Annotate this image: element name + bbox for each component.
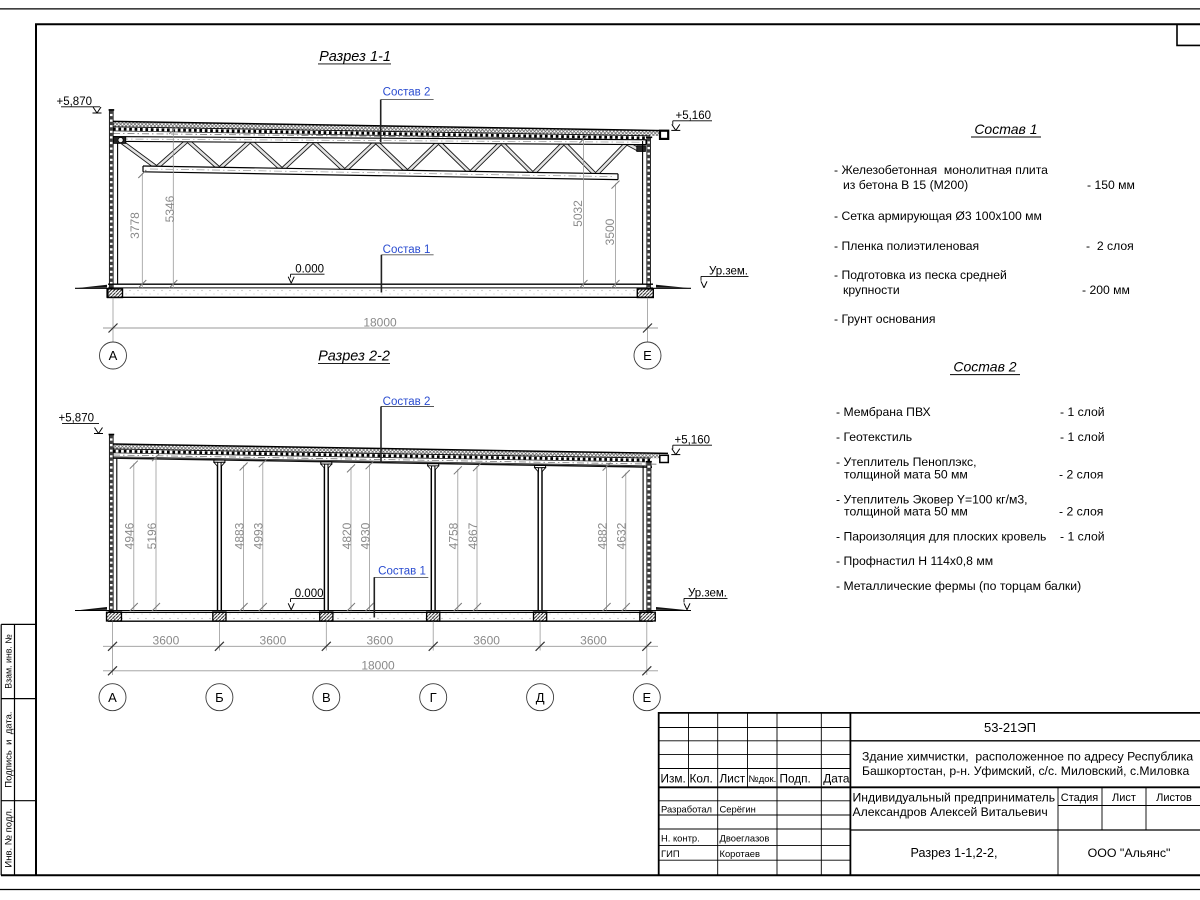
svg-text:3600: 3600 (260, 634, 287, 648)
svg-text:3500: 3500 (603, 218, 617, 245)
svg-text:5032: 5032 (571, 200, 585, 227)
svg-text:Инв. № подл.: Инв. № подл. (4, 808, 15, 867)
svg-text:Разрез 1-1,2-2,: Разрез 1-1,2-2, (910, 846, 997, 860)
svg-text:- 2 слоя: - 2 слоя (1086, 239, 1134, 253)
svg-text:Взам. инв. №: Взам. инв. № (4, 634, 14, 689)
svg-text:Башкортостан, р-н. Уфимский, с: Башкортостан, р-н. Уфимский, с/с. Миловс… (862, 764, 1189, 778)
svg-text:4930: 4930 (358, 522, 372, 549)
svg-text:В: В (322, 690, 331, 705)
svg-text:Разработал: Разработал (661, 804, 712, 815)
svg-text:крупности: крупности (843, 283, 900, 297)
svg-text:4758: 4758 (447, 522, 461, 549)
svg-text:толщиной мата 50 мм: толщиной мата 50 мм (844, 468, 968, 482)
svg-text:+5,160: +5,160 (676, 110, 712, 122)
svg-text:0.000: 0.000 (295, 588, 324, 600)
svg-text:+5,870: +5,870 (59, 413, 95, 425)
svg-text:4883: 4883 (232, 522, 246, 549)
svg-text:53-21ЭП: 53-21ЭП (984, 720, 1036, 735)
svg-text:Разрез 2-2: Разрез 2-2 (318, 348, 390, 364)
svg-text:0.000: 0.000 (295, 263, 324, 275)
svg-text:Дата: Дата (823, 772, 850, 786)
svg-text:Коротаев: Коротаев (720, 848, 761, 859)
svg-text:4820: 4820 (340, 522, 354, 549)
svg-text:- 2 слоя: - 2 слоя (1059, 468, 1103, 482)
svg-text:Серёгин: Серёгин (720, 804, 756, 815)
svg-text:- Металлические фермы (по торц: - Металлические фермы (по торцам балки) (836, 579, 1081, 593)
svg-text:4993: 4993 (252, 522, 266, 549)
svg-text:Н. контр.: Н. контр. (661, 833, 700, 844)
svg-text:Подп.: Подп. (780, 772, 811, 786)
svg-text:- Железобетонная монолитная п: - Железобетонная монолитная плита (834, 163, 1048, 177)
svg-text:Б: Б (215, 690, 224, 705)
svg-text:Александров Алексей Витальевич: Александров Алексей Витальевич (853, 805, 1048, 819)
svg-text:- Пленка полиэтиленовая: - Пленка полиэтиленовая (834, 239, 979, 253)
svg-text:4632: 4632 (615, 522, 629, 549)
svg-text:Индивидуальный предприниматель: Индивидуальный предприниматель (853, 791, 1056, 805)
svg-text:5346: 5346 (163, 195, 177, 222)
svg-text:3778: 3778 (128, 212, 142, 239)
svg-text:Стадия: Стадия (1061, 792, 1099, 804)
svg-text:Изм.: Изм. (661, 772, 686, 786)
svg-text:Г: Г (430, 690, 437, 705)
svg-text:Е: Е (642, 690, 651, 705)
svg-text:18000: 18000 (363, 316, 397, 330)
svg-text:ООО "Альянс": ООО "Альянс" (1088, 846, 1171, 860)
svg-text:Состав 2: Состав 2 (953, 358, 1016, 374)
svg-text:толщиной мата 50 мм: толщиной мата 50 мм (844, 505, 968, 519)
svg-text:№док.: №док. (749, 774, 777, 785)
svg-text:Листов: Листов (1156, 792, 1192, 804)
svg-text:+5,160: +5,160 (675, 434, 711, 446)
svg-text:- 1 слой: - 1 слой (1060, 405, 1105, 419)
svg-text:Состав 1: Состав 1 (378, 565, 426, 577)
svg-text:- Профнастил Н 114х0,8 мм: - Профнастил Н 114х0,8 мм (836, 554, 993, 568)
svg-text:18000: 18000 (361, 658, 395, 672)
svg-text:Лист: Лист (720, 772, 746, 786)
svg-text:Здание химчистки, расположенн: Здание химчистки, расположенное по адрес… (862, 750, 1193, 764)
svg-text:Кол.: Кол. (690, 772, 713, 786)
svg-text:Подпись и дата.: Подпись и дата. (4, 711, 15, 787)
svg-text:4946: 4946 (123, 522, 137, 549)
svg-text:из бетона В 15 (М200): из бетона В 15 (М200) (843, 178, 968, 192)
svg-text:- Подготовка из песка средней: - Подготовка из песка средней (834, 268, 1007, 282)
svg-text:- Сетка армирующая Ø3 100х100: - Сетка армирующая Ø3 100х100 мм (834, 209, 1042, 223)
svg-text:5196: 5196 (145, 522, 159, 549)
svg-text:- Пароизоляция для плоских кро: - Пароизоляция для плоских кровель (836, 530, 1046, 544)
svg-text:- 200 мм: - 200 мм (1082, 283, 1130, 297)
svg-text:4867: 4867 (466, 522, 480, 549)
svg-text:А: А (108, 690, 117, 705)
svg-text:Состав 1: Состав 1 (974, 121, 1037, 137)
svg-text:- Мембрана ПВХ: - Мембрана ПВХ (836, 405, 931, 419)
svg-text:3600: 3600 (580, 634, 607, 648)
svg-text:Е: Е (643, 348, 652, 363)
svg-text:+5,870: +5,870 (57, 96, 93, 108)
svg-text:- 2 слоя: - 2 слоя (1059, 505, 1103, 519)
svg-text:4882: 4882 (595, 522, 609, 549)
svg-text:- Геотекстиль: - Геотекстиль (836, 430, 912, 444)
svg-text:Разрез 1-1: Разрез 1-1 (319, 49, 391, 65)
svg-text:Ур.зем.: Ур.зем. (709, 266, 748, 278)
svg-text:3600: 3600 (153, 634, 180, 648)
svg-text:ГИП: ГИП (661, 848, 680, 859)
svg-text:Двоеглазов: Двоеглазов (720, 833, 770, 844)
svg-text:3600: 3600 (366, 634, 393, 648)
svg-text:Ур.зем.: Ур.зем. (688, 588, 727, 600)
svg-text:Д: Д (536, 690, 545, 705)
svg-text:- 150 мм: - 150 мм (1087, 178, 1135, 192)
svg-text:Состав 2: Состав 2 (383, 86, 431, 98)
svg-text:- 1 слой: - 1 слой (1060, 430, 1105, 444)
svg-text:- Грунт основания: - Грунт основания (834, 312, 935, 326)
svg-text:А: А (109, 348, 118, 363)
svg-text:3600: 3600 (473, 634, 500, 648)
svg-text:Лист: Лист (1112, 792, 1136, 804)
svg-text:- 1 слой: - 1 слой (1060, 530, 1105, 544)
